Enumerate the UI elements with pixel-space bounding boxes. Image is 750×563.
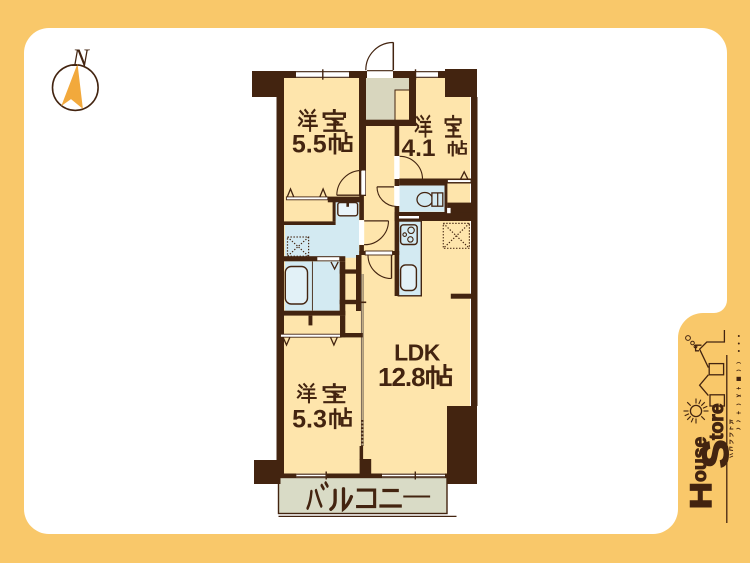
svg-text:tore: tore [707, 403, 728, 440]
svg-text:12.8: 12.8 [378, 362, 425, 392]
svg-text:H: H [684, 482, 718, 509]
svg-text:5.5: 5.5 [292, 130, 327, 158]
svg-text:5.3: 5.3 [292, 406, 327, 434]
svg-text:4.1: 4.1 [401, 135, 435, 162]
svg-text:N: N [71, 45, 90, 72]
